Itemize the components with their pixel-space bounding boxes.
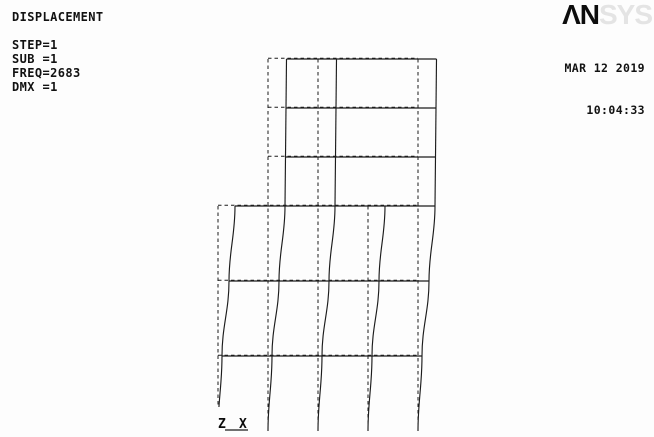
triad-z-label: Z: [218, 417, 226, 432]
deformed-tower-column: [335, 59, 337, 206]
model-viewport[interactable]: ZX: [0, 0, 654, 437]
deformed-tower-column: [285, 59, 287, 206]
deformed-block-column: [268, 206, 285, 431]
deformed-block-column: [368, 206, 385, 431]
deformed-tower-column: [435, 59, 437, 206]
deformed-block-column: [218, 206, 235, 431]
deformed-block-column: [318, 206, 335, 431]
ansys-graphics-window: DISPLACEMENT STEP=1 SUB =1 FREQ=2683 DMX…: [0, 0, 654, 437]
deformed-block-column: [418, 206, 435, 431]
